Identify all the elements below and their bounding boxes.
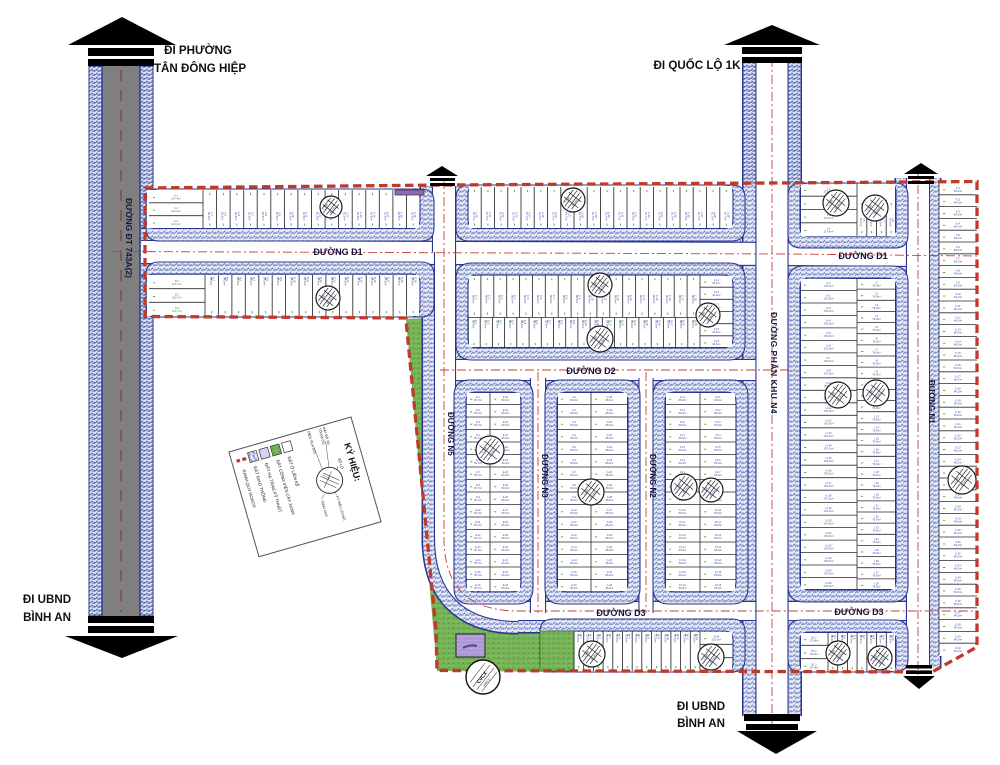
svg-text:ĐƯỜNG PHÂN KHU N4: ĐƯỜNG PHÂN KHU N4 — [769, 312, 780, 414]
svg-text:F1.1486.0m²: F1.1486.0m² — [679, 559, 687, 565]
svg-text:ĐƯỜNG D1: ĐƯỜNG D1 — [838, 250, 887, 261]
svg-text:ĐI UBND: ĐI UBND — [23, 593, 71, 606]
svg-text:F2.1583.0m²: F2.1583.0m² — [714, 571, 722, 577]
svg-text:ĐƯỜNG D3: ĐƯỜNG D3 — [834, 606, 883, 617]
svg-text:BÌNH AN: BÌNH AN — [677, 717, 725, 730]
svg-text:ĐƯỜNG N2: ĐƯỜNG N2 — [648, 454, 657, 498]
svg-text:ĐI PHƯỜNG: ĐI PHƯỜNG — [164, 44, 232, 57]
svg-text:ĐƯỜNG ĐT 743A(2): ĐƯỜNG ĐT 743A(2) — [124, 198, 135, 278]
svg-text:ĐI UBND: ĐI UBND — [677, 700, 725, 713]
svg-text:ĐƯỜNG N1: ĐƯỜNG N1 — [927, 380, 936, 424]
svg-text:F2.1383.0m²: F2.1383.0m² — [714, 546, 722, 552]
svg-text:BÌNH AN: BÌNH AN — [23, 611, 71, 624]
svg-text:F1.1386.0m²: F1.1386.0m² — [679, 546, 687, 552]
svg-text:ĐƯỜNG D3: ĐƯỜNG D3 — [596, 607, 645, 618]
svg-text:TÂN ĐÔNG HIỆP: TÂN ĐÔNG HIỆP — [154, 62, 246, 75]
svg-text:ĐƯỜNG D2: ĐƯỜNG D2 — [566, 365, 615, 376]
svg-text:F2.1683.0m²: F2.1683.0m² — [714, 584, 722, 590]
svg-text:ĐƯỜNG N3: ĐƯỜNG N3 — [540, 454, 549, 498]
svg-text:F2.1283.0m²: F2.1283.0m² — [714, 534, 722, 540]
svg-text:F1.1086.0m²: F1.1086.0m² — [679, 509, 687, 515]
svg-text:ĐI QUỐC LỘ 1K: ĐI QUỐC LỘ 1K — [654, 58, 742, 72]
svg-text:F2.1083.0m²: F2.1083.0m² — [714, 509, 722, 515]
svg-text:ĐƯỜNG D1: ĐƯỜNG D1 — [313, 246, 362, 257]
svg-text:F1.1286.0m²: F1.1286.0m² — [679, 534, 687, 540]
svg-text:F2.1483.0m²: F2.1483.0m² — [714, 559, 722, 565]
svg-text:ĐƯỜNG N5: ĐƯỜNG N5 — [446, 412, 455, 456]
svg-text:F1.1186.0m²: F1.1186.0m² — [679, 521, 687, 527]
svg-text:F1.1586.0m²: F1.1586.0m² — [679, 571, 687, 577]
svg-text:F2.1183.0m²: F2.1183.0m² — [714, 521, 722, 527]
svg-text:F1.1686.0m²: F1.1686.0m² — [679, 584, 687, 590]
